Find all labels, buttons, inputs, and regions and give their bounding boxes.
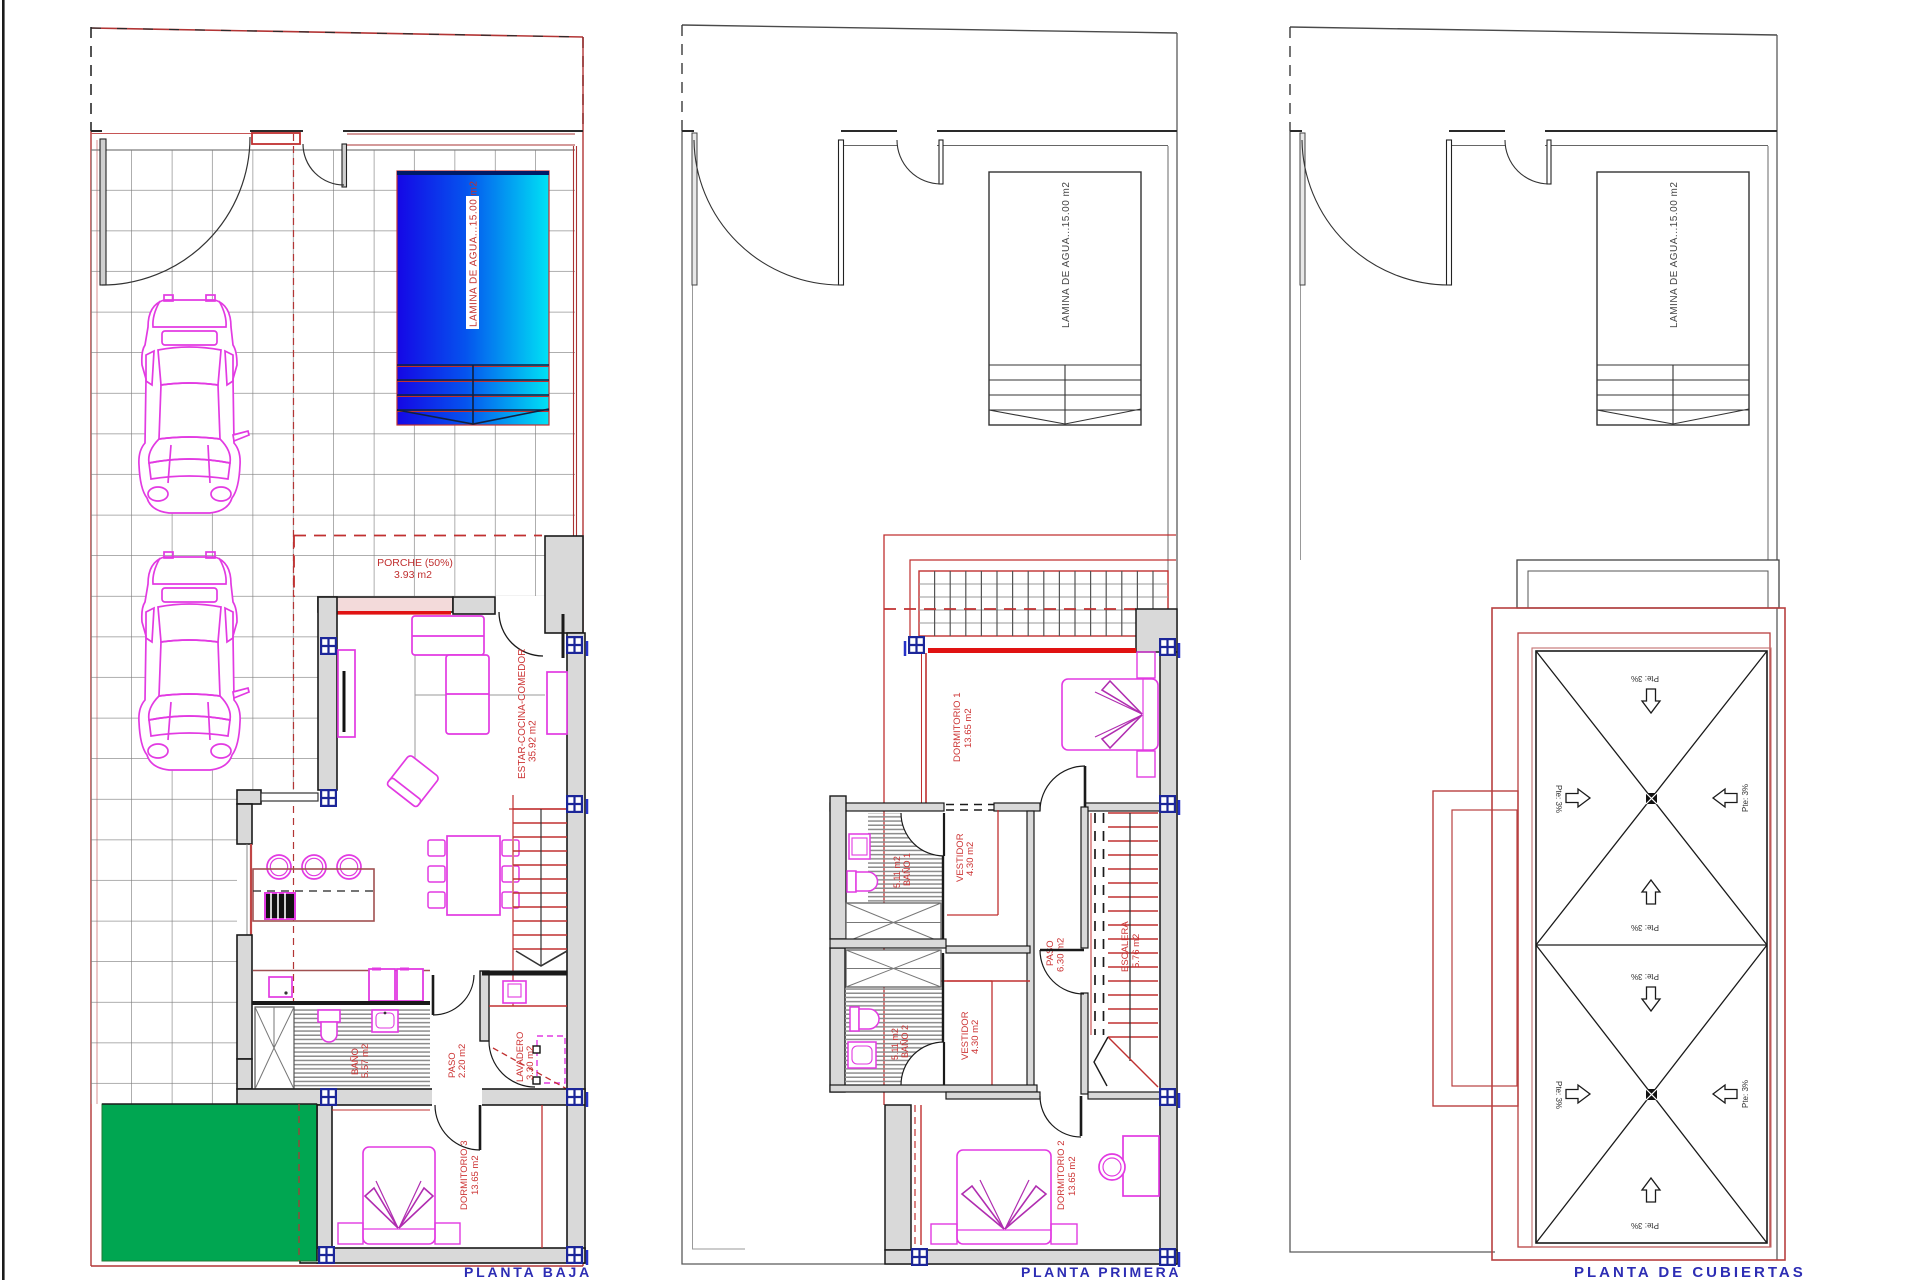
svg-text:PORCHE (50%): PORCHE (50%) — [377, 557, 453, 569]
svg-text:Pte: 3%: Pte: 3% — [1631, 674, 1659, 683]
svg-text:PLANTA PRIMERA: PLANTA PRIMERA — [1021, 1264, 1181, 1280]
svg-text:6.30 m2: 6.30 m2 — [1056, 938, 1067, 972]
svg-text:LAMINA DE AGUA...15.00 m2: LAMINA DE AGUA...15.00 m2 — [469, 181, 480, 327]
svg-text:Pte: 3%: Pte: 3% — [1631, 1221, 1659, 1230]
svg-text:Pte: 3%: Pte: 3% — [1554, 1081, 1563, 1109]
svg-text:13.65 m2: 13.65 m2 — [470, 1155, 481, 1195]
svg-text:DORMITORIO 2: DORMITORIO 2 — [1056, 1141, 1067, 1211]
svg-text:LAMINA DE AGUA...15.00 m2: LAMINA DE AGUA...15.00 m2 — [1061, 182, 1072, 328]
svg-text:Pte: 3%: Pte: 3% — [1631, 923, 1659, 932]
svg-text:3.30 m2: 3.30 m2 — [525, 1046, 536, 1080]
svg-text:13.65 m2: 13.65 m2 — [963, 708, 974, 748]
svg-text:PASO: PASO — [1045, 940, 1056, 966]
svg-text:5.57 m2: 5.57 m2 — [360, 1044, 371, 1078]
svg-text:4.30 m2: 4.30 m2 — [970, 1020, 981, 1054]
svg-text:ESTAR-COCINA-COMEDOR: ESTAR-COCINA-COMEDOR — [517, 649, 528, 779]
svg-text:4.30 m2: 4.30 m2 — [965, 842, 976, 876]
svg-text:DORMITORIO 1: DORMITORIO 1 — [952, 693, 963, 763]
svg-text:PLANTA BAJA: PLANTA BAJA — [464, 1264, 592, 1280]
svg-text:Pte: 3%: Pte: 3% — [1741, 784, 1750, 812]
svg-text:DORMITORIO 3: DORMITORIO 3 — [459, 1141, 470, 1211]
svg-text:5.11 m2: 5.11 m2 — [890, 1028, 900, 1060]
svg-text:3.93 m2: 3.93 m2 — [394, 569, 432, 581]
svg-text:5.76 m2: 5.76 m2 — [1131, 934, 1142, 968]
svg-text:Pte: 3%: Pte: 3% — [1741, 1080, 1750, 1108]
svg-text:Pte: 3%: Pte: 3% — [1631, 972, 1659, 981]
svg-text:BAÑO 1: BAÑO 1 — [902, 853, 912, 886]
svg-text:5.11 m2: 5.11 m2 — [892, 856, 902, 888]
svg-text:13.65 m2: 13.65 m2 — [1067, 1156, 1078, 1196]
svg-text:2.20 m2: 2.20 m2 — [457, 1044, 468, 1078]
svg-text:BAÑO 2: BAÑO 2 — [900, 1025, 910, 1058]
svg-text:35.92 m2: 35.92 m2 — [528, 720, 539, 762]
svg-text:ESCALERA: ESCALERA — [1120, 921, 1131, 972]
svg-text:LAMINA DE AGUA...15.00 m2: LAMINA DE AGUA...15.00 m2 — [1669, 182, 1680, 328]
svg-text:PLANTA DE CUBIERTAS: PLANTA DE CUBIERTAS — [1574, 1264, 1806, 1280]
svg-text:Pte: 3%: Pte: 3% — [1554, 785, 1563, 813]
